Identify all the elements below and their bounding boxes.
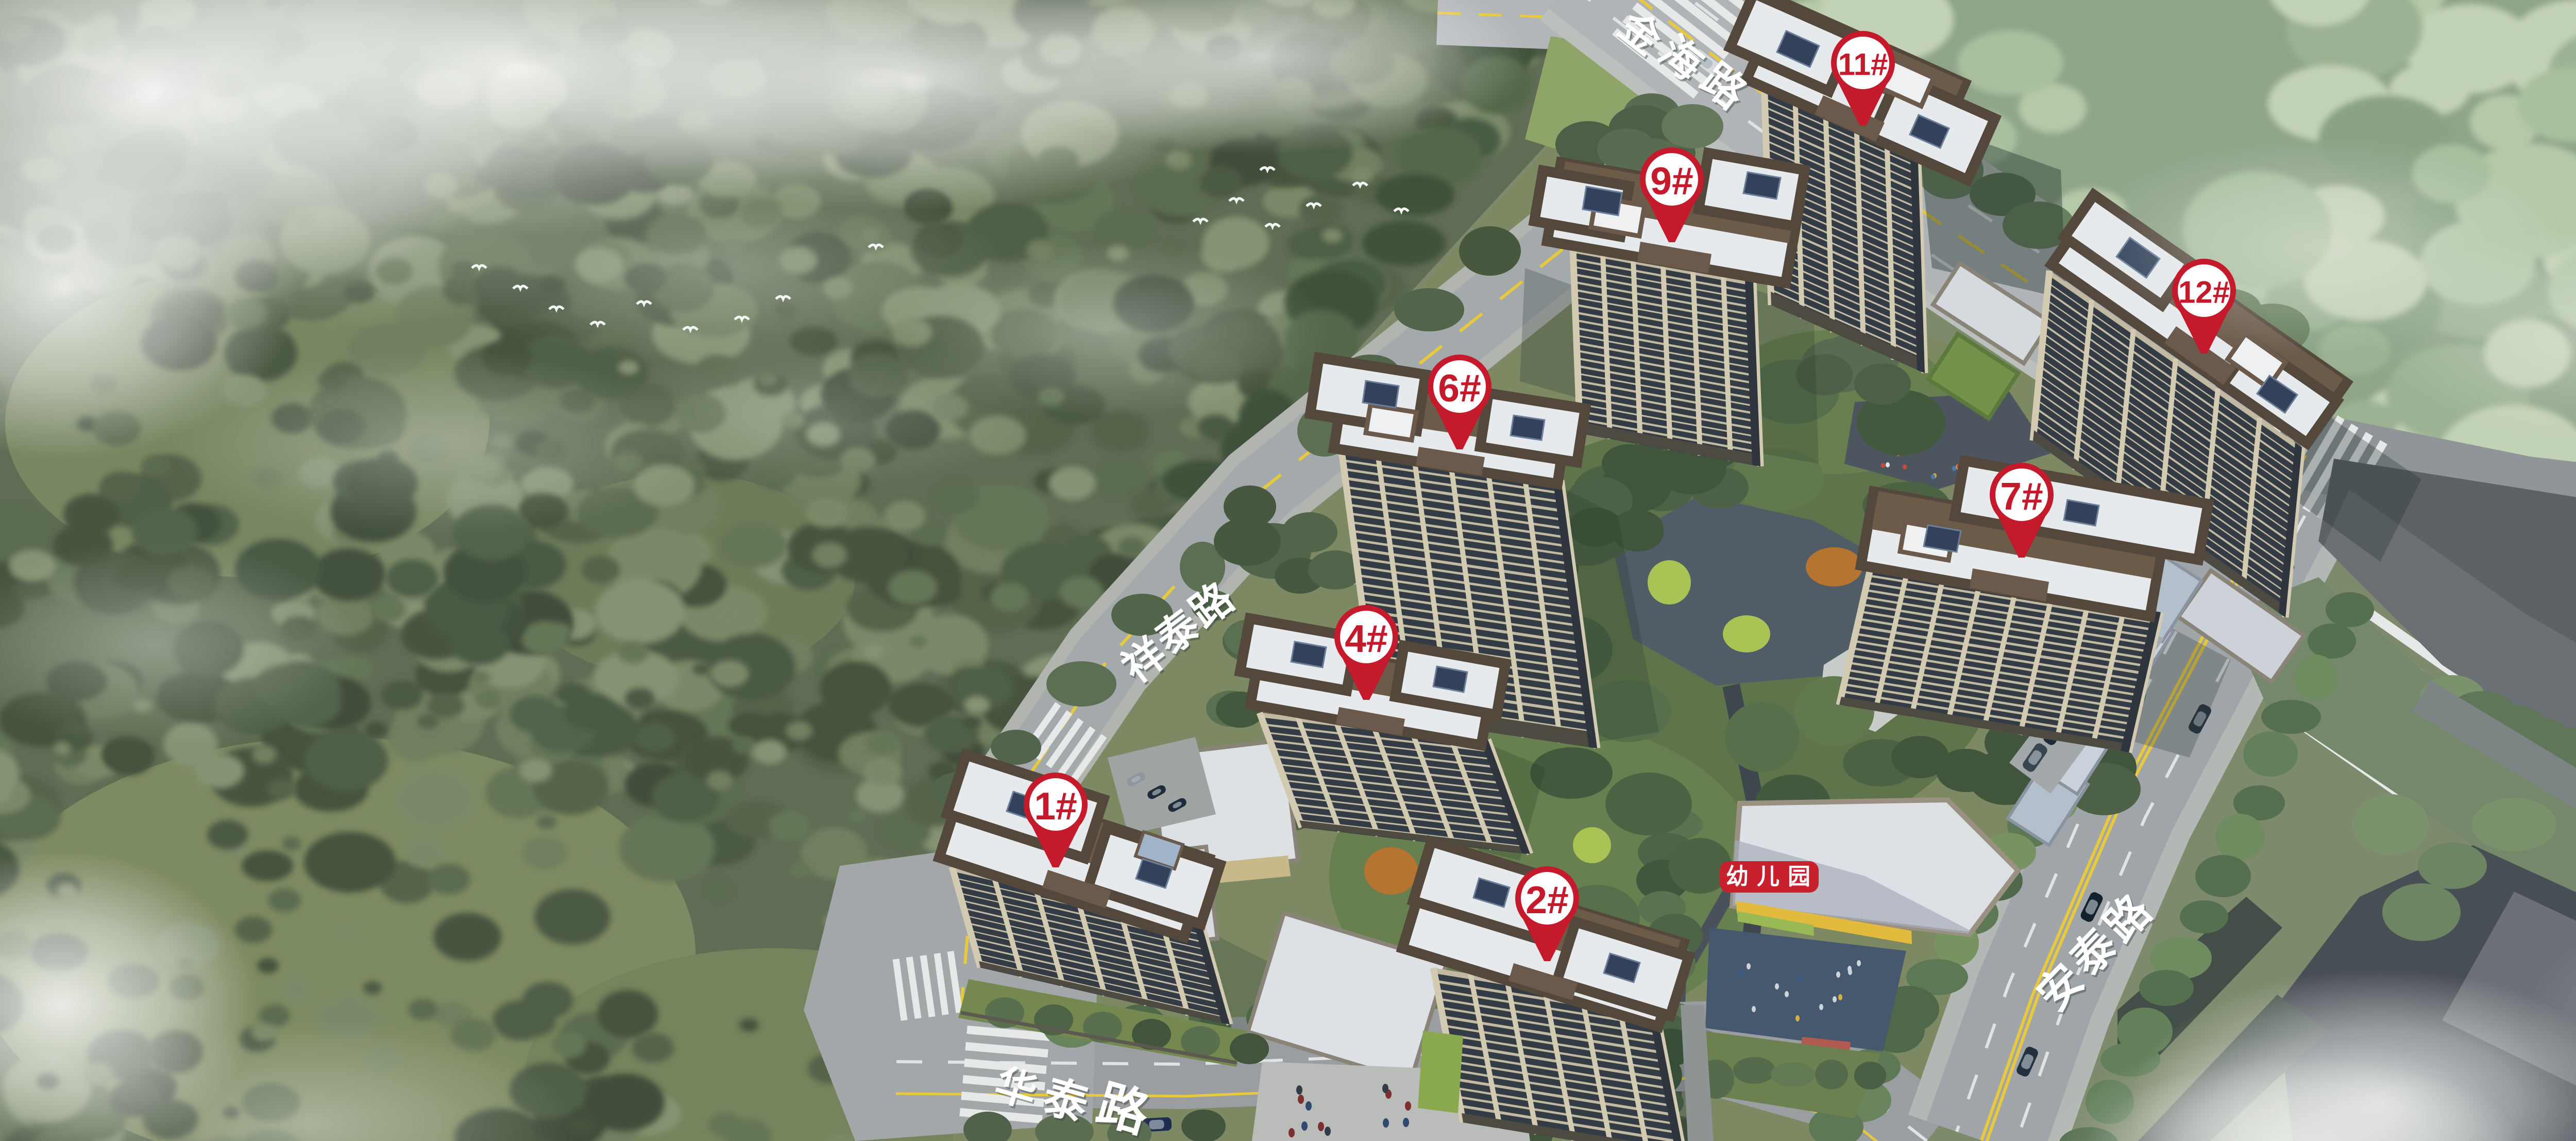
svg-text:1#: 1# [1034,784,1077,828]
svg-text:园: 园 [1788,864,1810,890]
svg-text:4#: 4# [1345,617,1387,660]
svg-text:9#: 9# [1650,159,1693,203]
svg-text:11#: 11# [1838,47,1888,82]
svg-text:儿: 儿 [1757,864,1780,890]
svg-text:7#: 7# [2000,475,2043,518]
svg-text:12#: 12# [2178,275,2230,310]
svg-text:幼: 幼 [1726,864,1749,890]
svg-text:6#: 6# [1438,366,1481,410]
svg-text:2#: 2# [1526,878,1568,921]
